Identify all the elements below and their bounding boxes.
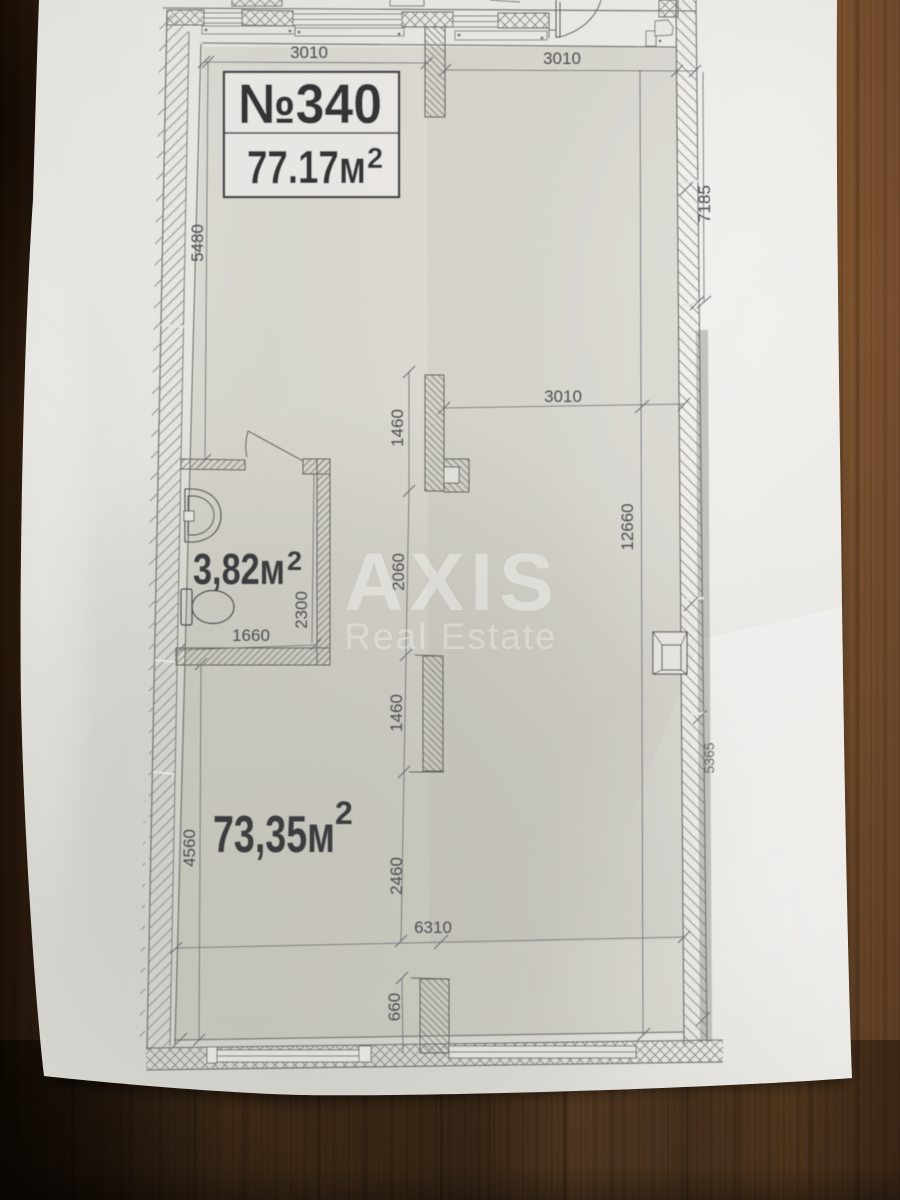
svg-text:AXIS: AXIS <box>344 537 559 628</box>
svg-text:Real Estate: Real Estate <box>344 616 557 657</box>
